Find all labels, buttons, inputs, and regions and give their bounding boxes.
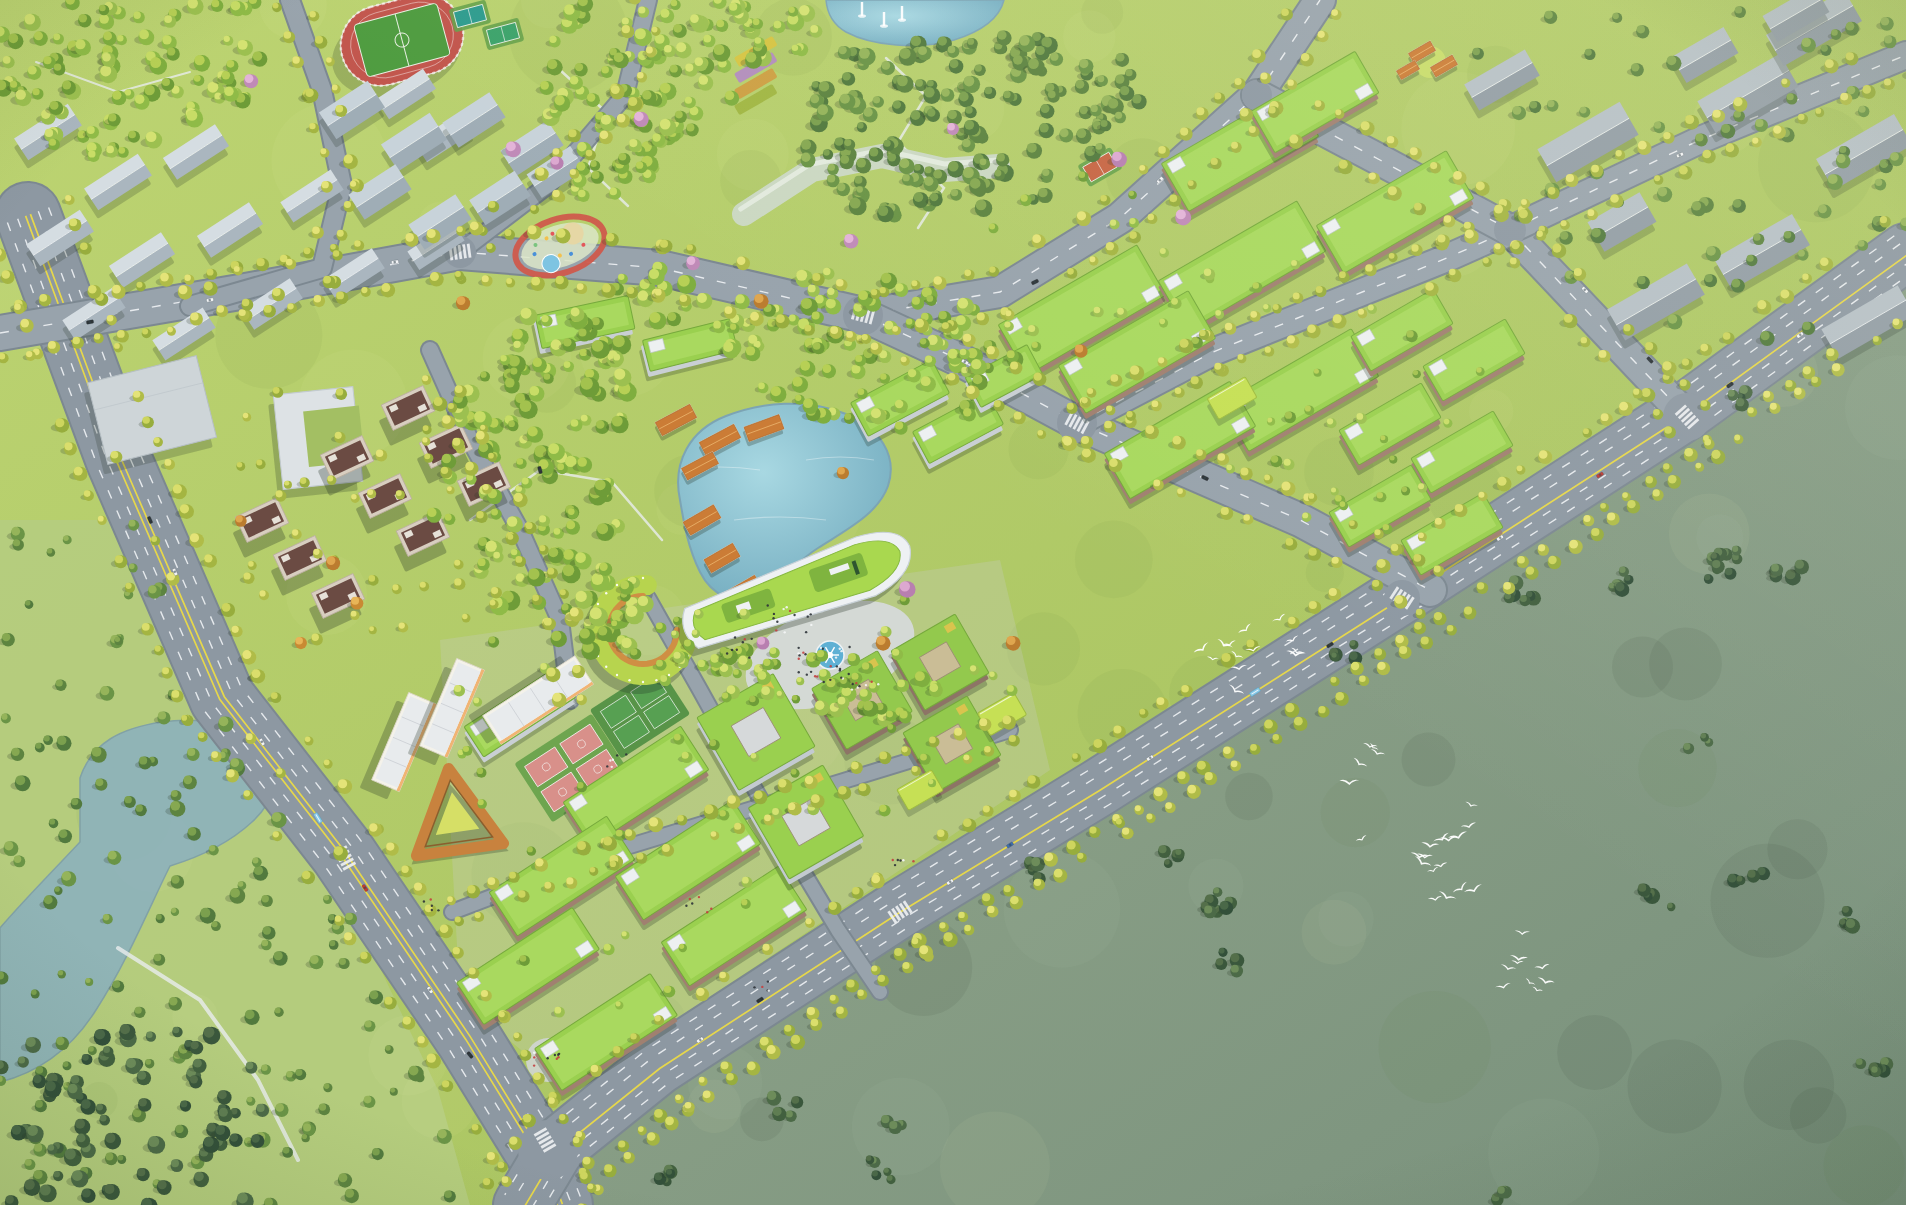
scene-svg xyxy=(0,0,1906,1205)
aerial-masterplan-render xyxy=(0,0,1906,1205)
lighting-layer xyxy=(0,0,1906,1205)
